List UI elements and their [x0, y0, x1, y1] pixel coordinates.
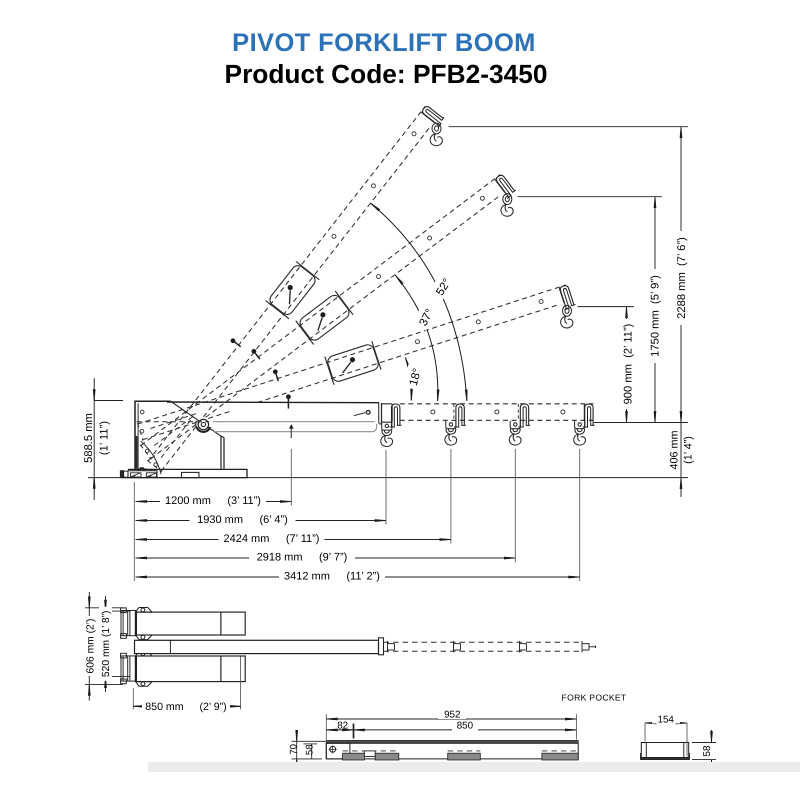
svg-text:900 mm (2’ 11”): 900 mm (2’ 11”) [622, 323, 634, 404]
svg-text:2288 mm (7’ 6”): 2288 mm (7’ 6”) [676, 237, 688, 319]
svg-text:(1’ 11”): (1’ 11”) [99, 421, 111, 455]
svg-text:58: 58 [304, 744, 315, 755]
svg-text:1750 mm (5’ 9”): 1750 mm (5’ 9”) [649, 275, 661, 357]
svg-text:850 mm (2’ 9”): 850 mm (2’ 9”) [145, 701, 226, 713]
svg-text:154: 154 [658, 714, 675, 725]
svg-text:520 mm (1’ 8”): 520 mm (1’ 8”) [101, 611, 112, 678]
svg-text:70: 70 [289, 744, 300, 755]
svg-text:58: 58 [702, 745, 713, 757]
svg-text:850: 850 [457, 720, 474, 731]
svg-text:FORK POCKET: FORK POCKET [562, 693, 627, 703]
svg-text:2918 mm (9’ 7”): 2918 mm (9’ 7”) [257, 552, 348, 564]
svg-text:PIVOT FORKLIFT BOOM: PIVOT FORKLIFT BOOM [232, 29, 536, 57]
svg-text:82: 82 [337, 720, 348, 731]
svg-text:406 mm: 406 mm [669, 430, 681, 469]
svg-text:1200 mm (3’ 11”): 1200 mm (3’ 11”) [165, 495, 261, 507]
svg-text:1930 mm (6’ 4”): 1930 mm (6’ 4”) [197, 514, 288, 526]
svg-text:2424 mm (7’ 11”): 2424 mm (7’ 11”) [224, 533, 320, 545]
svg-text:(1’ 4”): (1’ 4”) [683, 436, 695, 464]
svg-text:588.5 mm: 588.5 mm [83, 413, 95, 463]
svg-text:952: 952 [444, 710, 460, 721]
svg-text:Product Code: PFB2-3450: Product Code: PFB2-3450 [225, 59, 548, 89]
svg-text:606 mm (2’): 606 mm (2’) [85, 619, 96, 674]
svg-text:3412 mm (11’ 2”): 3412 mm (11’ 2”) [284, 571, 380, 583]
